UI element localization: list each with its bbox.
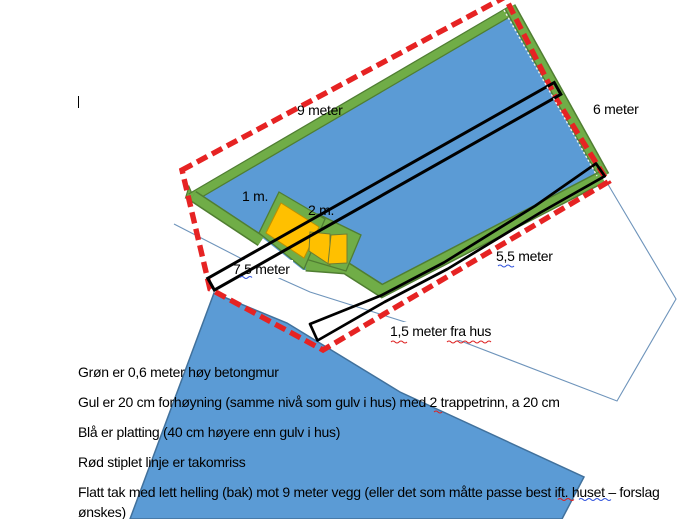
svg-text:1,5 meter fra hus: 1,5 meter fra hus [390, 323, 491, 339]
